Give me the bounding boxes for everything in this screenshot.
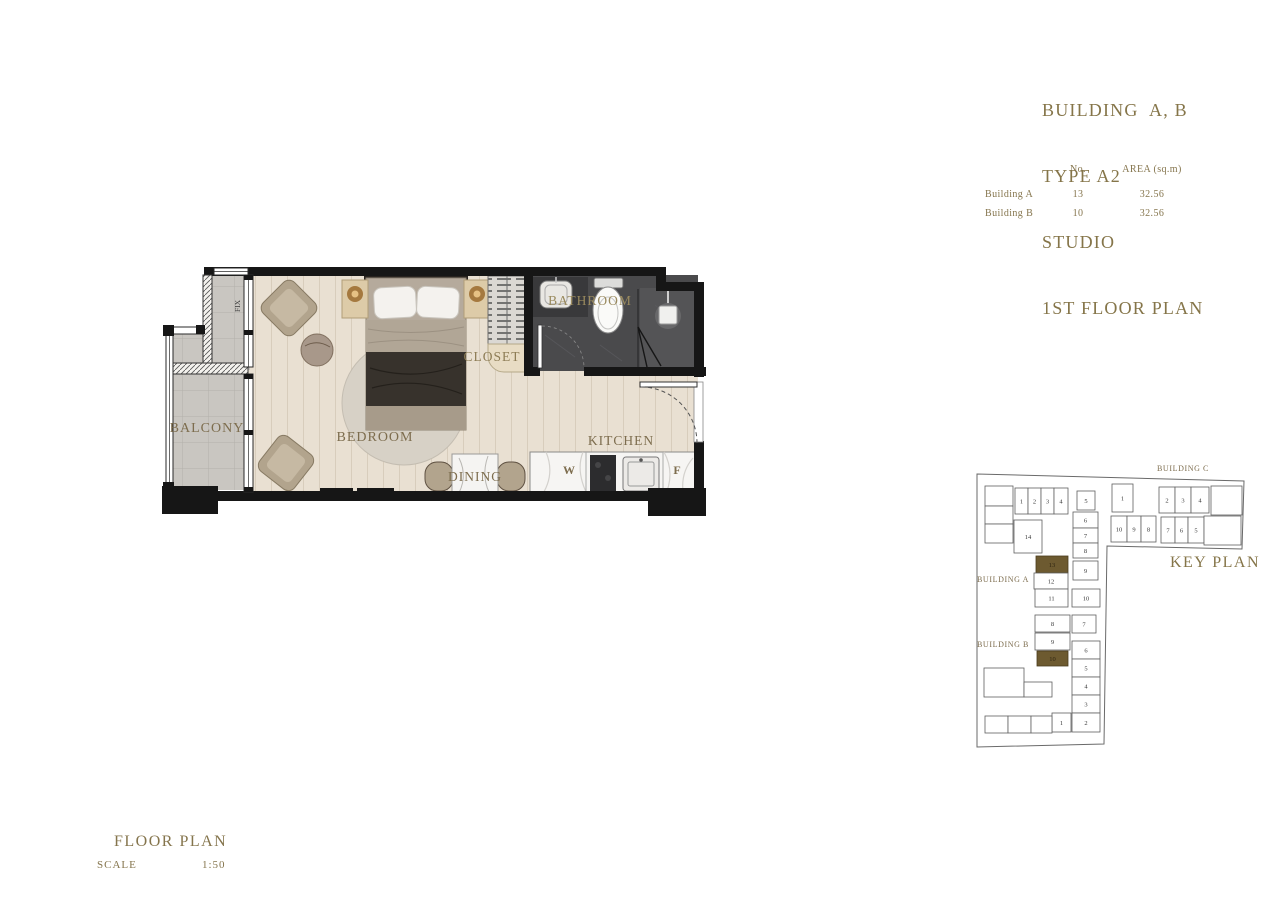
key-plan-unit-number: 5 <box>1084 665 1087 672</box>
room-label-closet: CLOSET <box>463 349 520 364</box>
key-plan-unit-number: 10 <box>1049 656 1056 663</box>
key-plan-unit-number: 3 <box>1046 498 1049 505</box>
key-plan-unit <box>1211 486 1242 515</box>
area-table-row-name: Building A <box>985 189 1055 200</box>
area-table-row-no: 13 <box>1060 189 1096 200</box>
key-plan-unit <box>985 486 1013 506</box>
title-line-studio: STUDIO <box>1042 231 1204 253</box>
toilet-tank <box>594 278 623 288</box>
bed <box>364 270 468 430</box>
key-plan-unit <box>1204 516 1241 545</box>
key-plan-unit <box>985 506 1013 524</box>
key-plan-unit-number: 8 <box>1051 621 1054 628</box>
hatched-wall <box>166 363 248 374</box>
key-plan-unit-number: 1 <box>1060 720 1063 727</box>
key-plan-unit-number: 2 <box>1084 720 1087 727</box>
key-plan-unit <box>985 716 1008 733</box>
key-plan-unit-number: 10 <box>1116 526 1123 533</box>
area-table-header-area: AREA (sq.m) <box>1112 164 1192 175</box>
key-plan-unit-number: 5 <box>1084 498 1087 505</box>
side-table <box>301 334 333 366</box>
key-plan-unit <box>984 668 1024 697</box>
key-plan-unit-number: 13 <box>1049 562 1056 569</box>
label-washer: W <box>563 463 575 477</box>
room-label-kitchen: KITCHEN <box>588 433 654 448</box>
footer-floor-plan-title: FLOOR PLAN <box>114 833 227 851</box>
key-plan-unit-number: 8 <box>1084 548 1087 555</box>
hatched-column <box>203 275 212 367</box>
key-plan-title: KEY PLAN <box>1170 554 1260 571</box>
key-plan-unit-number: 12 <box>1048 578 1055 585</box>
area-table-row-name: Building B <box>985 208 1055 219</box>
key-plan-outline <box>977 474 1244 747</box>
room-label-bedroom: BEDROOM <box>336 430 413 445</box>
shower-head <box>659 306 677 324</box>
footer-scale-label: SCALE <box>97 859 137 871</box>
key-plan-unit-number: 1 <box>1020 498 1023 505</box>
key-plan-unit-number: 2 <box>1033 498 1036 505</box>
label-building-c: BUILDING C <box>1157 464 1209 473</box>
entry-threshold <box>694 382 703 442</box>
key-plan-unit-number: 5 <box>1194 527 1197 534</box>
room-label-dining: DINING <box>448 469 502 484</box>
key-plan-unit-number: 3 <box>1084 701 1087 708</box>
key-plan-unit-number: 10 <box>1083 595 1090 602</box>
key-plan-unit <box>1031 716 1052 733</box>
area-table-row-no: 10 <box>1060 208 1096 219</box>
nightstand-right <box>464 280 490 318</box>
key-plan-unit-number: 9 <box>1132 526 1135 533</box>
key-plan-unit-number: 8 <box>1147 526 1150 533</box>
area-table-header-no: No. <box>1060 164 1096 175</box>
key-plan-unit-number: 3 <box>1181 497 1184 504</box>
footer-scale-value: 1:50 <box>202 859 226 871</box>
cooktop <box>590 455 616 492</box>
label-fridge: F <box>673 463 680 477</box>
room-label-balcony: BALCONY <box>170 421 245 436</box>
key-plan-unit <box>985 524 1013 543</box>
room-label-bathroom: BATHROOM <box>548 293 632 308</box>
key-plan-unit <box>1024 682 1052 697</box>
key-plan-unit-number: 9 <box>1051 639 1054 646</box>
entry-door-leaf <box>640 382 697 387</box>
area-table-row-area: 32.56 <box>1112 189 1192 200</box>
label-building-b: BUILDING B <box>977 640 1029 649</box>
area-table-row-area: 32.56 <box>1112 208 1192 219</box>
key-plan-unit-number: 9 <box>1084 568 1087 575</box>
nightstand-left <box>342 280 368 318</box>
key-plan-unit-number: 11 <box>1048 595 1054 602</box>
key-plan-unit-number: 1 <box>1121 495 1124 502</box>
title-line-floor: 1ST FLOOR PLAN <box>1042 297 1204 319</box>
key-plan-unit-number: 14 <box>1025 534 1032 541</box>
label-fix-window: FIX <box>233 299 242 312</box>
key-plan-unit <box>1008 716 1031 733</box>
floor-plan-drawing: BALCONY BEDROOM CLOSET BATHROOM KITCHEN … <box>160 250 720 530</box>
title-line-building: BUILDING A, B <box>1042 99 1204 121</box>
label-building-a: BUILDING A <box>977 575 1029 584</box>
key-plan-unit-number: 2 <box>1165 497 1168 504</box>
key-plan-drawing: 1234567891413121110879106543211234109876… <box>958 455 1260 755</box>
bathroom-door-leaf <box>538 325 542 368</box>
